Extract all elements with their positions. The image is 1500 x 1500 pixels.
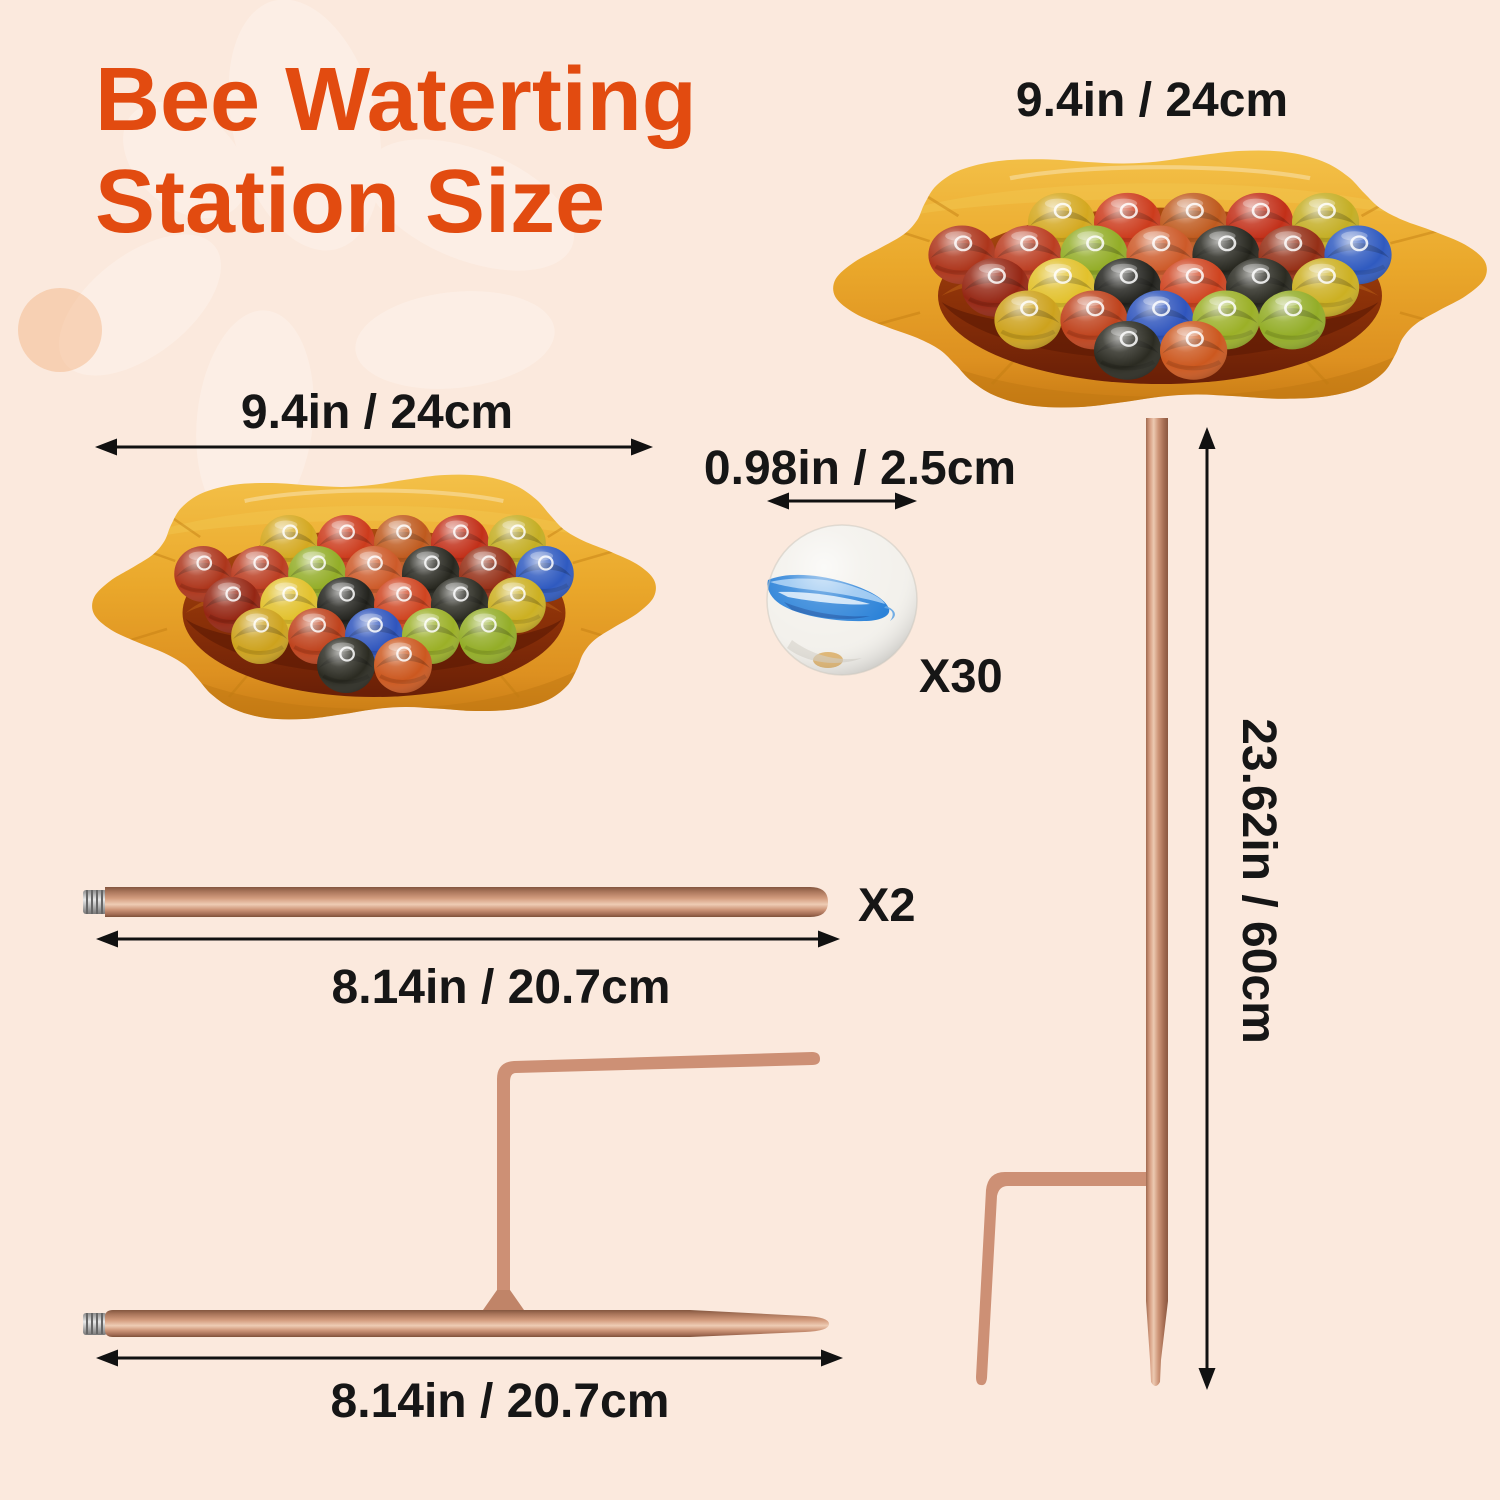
svg-text:Bee Waterting: Bee Waterting: [95, 50, 697, 150]
svg-text:23.62in / 60cm: 23.62in / 60cm: [1232, 718, 1285, 1044]
svg-text:0.98in / 2.5cm: 0.98in / 2.5cm: [704, 442, 1016, 495]
svg-text:9.4in / 24cm: 9.4in / 24cm: [241, 386, 513, 439]
svg-text:Station Size: Station Size: [95, 152, 605, 252]
svg-text:8.14in / 20.7cm: 8.14in / 20.7cm: [332, 961, 671, 1014]
svg-text:X2: X2: [858, 878, 916, 931]
svg-text:8.14in / 20.7cm: 8.14in / 20.7cm: [331, 1375, 670, 1428]
svg-text:9.4in / 24cm: 9.4in / 24cm: [1016, 74, 1288, 127]
svg-text:X30: X30: [919, 649, 1003, 702]
